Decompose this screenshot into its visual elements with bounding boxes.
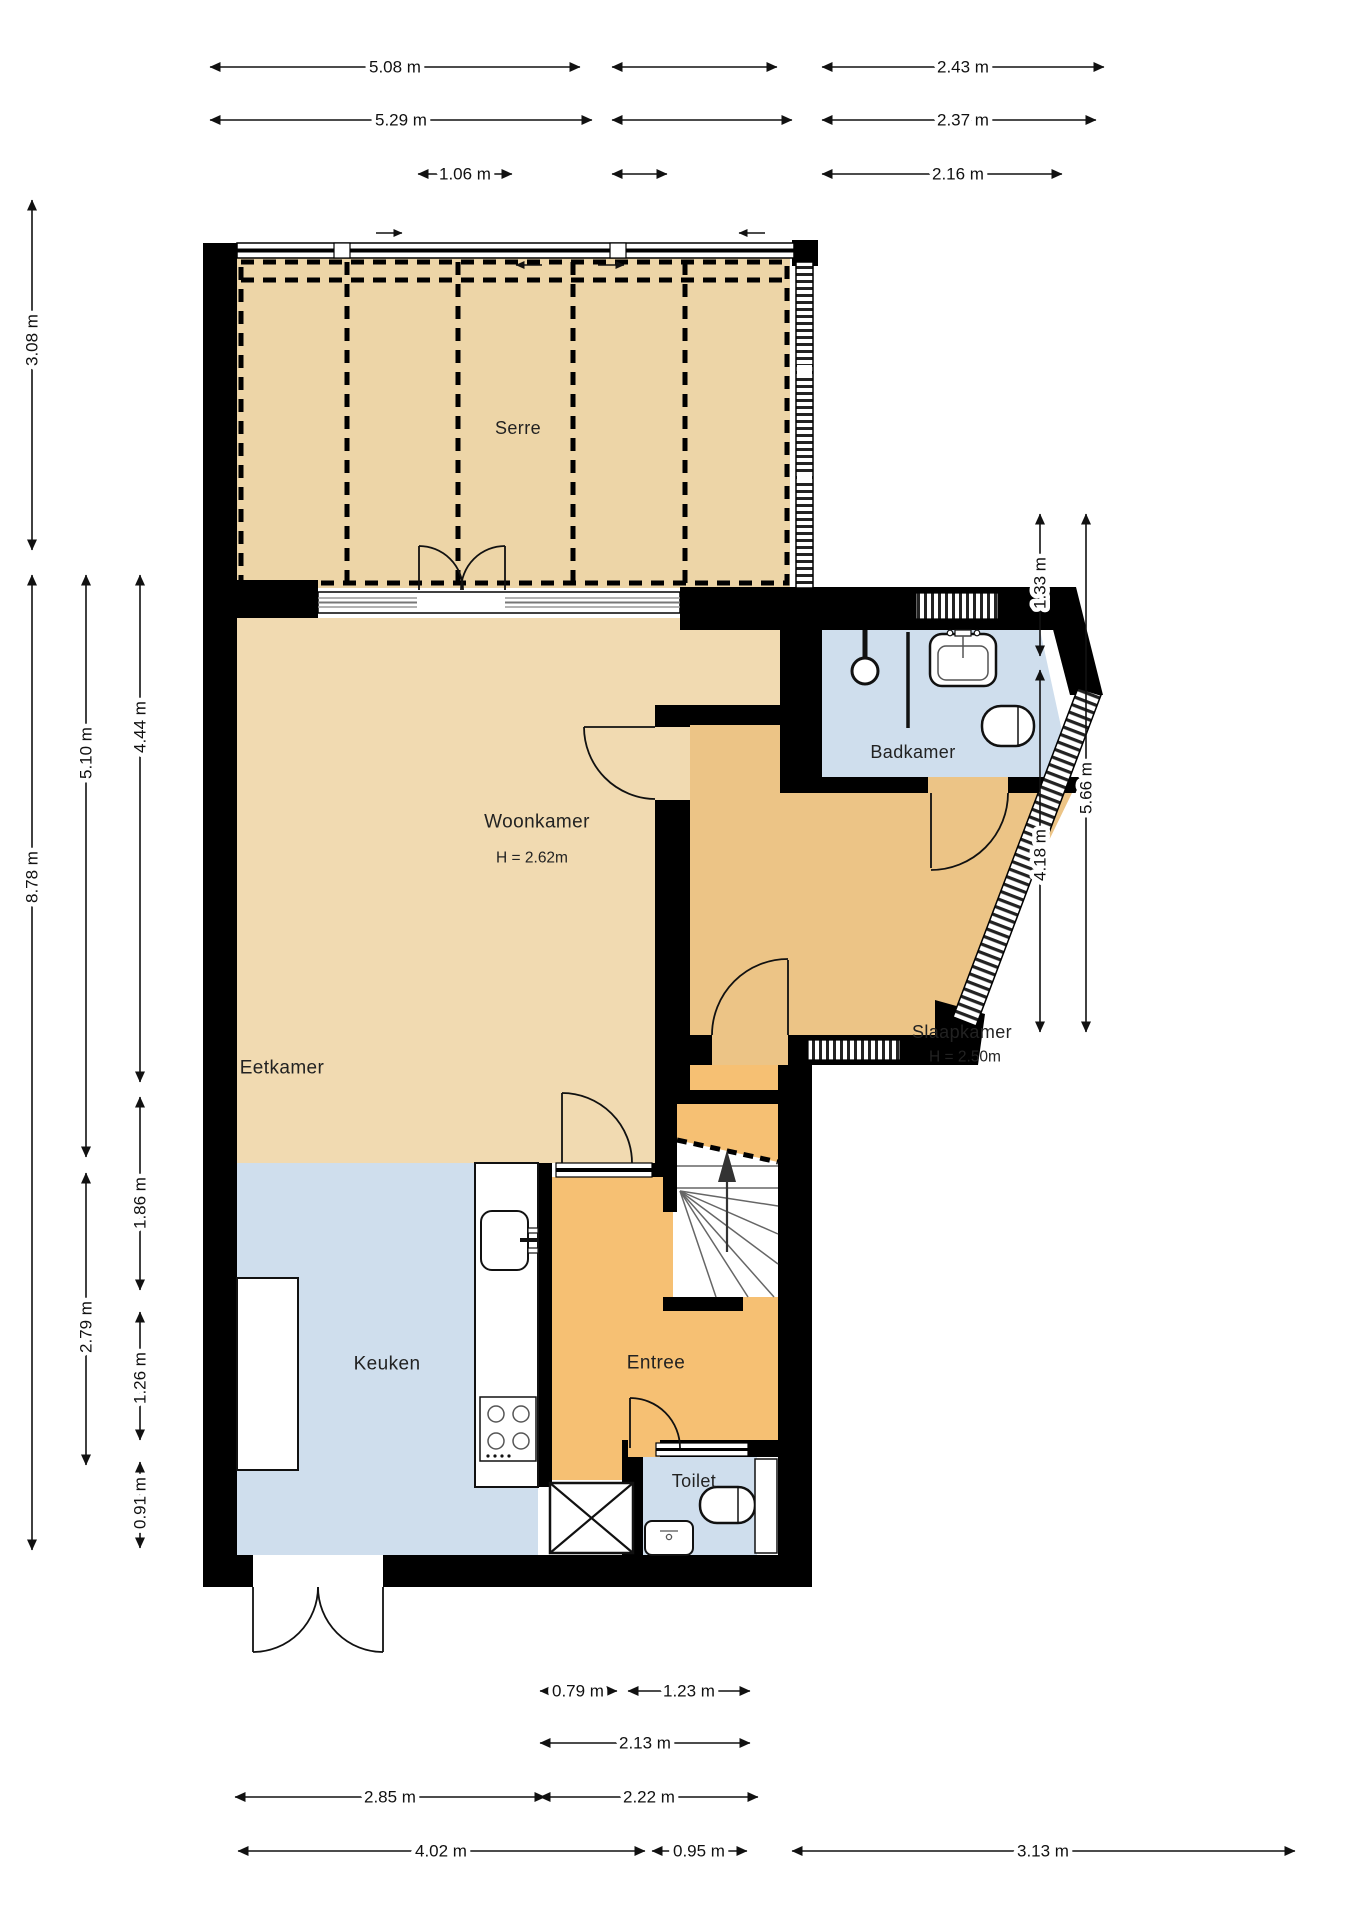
- slaapkamer-window: [808, 1040, 900, 1060]
- entree-window: [556, 1163, 652, 1177]
- staircase: [677, 1104, 778, 1297]
- understairs-floor: [673, 1311, 778, 1440]
- room-label-eetkamer: Eetkamer: [240, 1058, 325, 1079]
- dim-label: 0.95 m: [673, 1842, 725, 1861]
- dim-label: 5.08 m: [369, 58, 421, 77]
- room-label-entree: Entree: [627, 1353, 685, 1374]
- dim-bottom-5: 2.22 m: [540, 1788, 758, 1807]
- floorplan-canvas: 5.08 m 2.43 m 5.29 m 2.37 m 1.06 m 2.16 …: [0, 0, 1358, 1920]
- dim-left-6: 1.86 m: [131, 1097, 150, 1290]
- dim-bottom-2: 1.23 m: [628, 1682, 750, 1701]
- dim-left-2: 8.78 m: [23, 575, 42, 1550]
- dim-label: 5.10 m: [77, 727, 96, 779]
- dim-label: 1.33 m: [1031, 557, 1050, 609]
- stove: [480, 1397, 536, 1461]
- dim-top-2: 2.43 m: [612, 58, 1104, 77]
- dim-left-8: 0.91 m: [131, 1462, 150, 1548]
- room-label-slaapkamer: Slaapkamer: [912, 1022, 1012, 1042]
- dim-top-1: 5.08 m: [210, 58, 580, 77]
- corridor-floor: [690, 1065, 778, 1090]
- dim-top-3: 5.29 m: [210, 111, 592, 130]
- woonkamer-floor-ext: [655, 618, 780, 705]
- room-label-toilet: Toilet: [672, 1471, 716, 1491]
- dim-label: 1.23 m: [663, 1682, 715, 1701]
- dim-label: 4.18 m: [1031, 829, 1050, 881]
- room-label-badkamer: Badkamer: [870, 742, 955, 762]
- wc-sink: [645, 1521, 693, 1555]
- serre-woonkamer-window: [318, 592, 680, 613]
- room-height-slaapkamer: H = 2.50m: [929, 1049, 1001, 1066]
- dim-left-7: 1.26 m: [131, 1312, 150, 1440]
- floorplan-drawing: 5.08 m 2.43 m 5.29 m 2.37 m 1.06 m 2.16 …: [0, 0, 1358, 1920]
- dim-bottom-3: 2.13 m: [540, 1734, 750, 1753]
- toilet-window: [656, 1443, 748, 1456]
- dim-right-3: 5.66 m: [1077, 514, 1096, 1032]
- dim-left-3: 5.10 m: [77, 575, 96, 1157]
- dim-label: 2.13 m: [619, 1734, 671, 1753]
- dim-label: 2.85 m: [364, 1788, 416, 1807]
- bathroom-sink: [930, 630, 996, 686]
- dim-label: 5.66 m: [1077, 762, 1096, 814]
- dim-bottom-7: 0.95 m: [652, 1842, 747, 1861]
- keuken-exterior-double-door: [253, 1587, 383, 1652]
- dim-top-4: 2.37 m: [612, 111, 1096, 130]
- dim-bottom-1: 0.79 m: [540, 1682, 617, 1701]
- dim-label: 3.08 m: [23, 314, 42, 366]
- dim-label: 0.91 m: [131, 1477, 150, 1529]
- dim-top-5: 1.06 m: [418, 165, 512, 184]
- woonkamer-floor: [237, 618, 655, 1163]
- bathroom-toilet: [982, 706, 1034, 746]
- badkamer-window: [916, 593, 998, 619]
- wc-toilet: [700, 1487, 755, 1523]
- dim-label: 0.79 m: [552, 1682, 604, 1701]
- dim-label: 2.22 m: [623, 1788, 675, 1807]
- entree-floor: [552, 1177, 673, 1480]
- dim-bottom-6: 4.02 m: [238, 1842, 645, 1861]
- dim-label: 1.26 m: [131, 1352, 150, 1404]
- dim-bottom-8: 3.13 m: [792, 1842, 1295, 1861]
- wc-niche: [755, 1459, 777, 1553]
- dim-left-1: 3.08 m: [23, 200, 42, 550]
- serre-right-window: [796, 262, 813, 588]
- room-height-woonkamer: H = 2.62m: [496, 850, 568, 867]
- stair-exit-floor: [743, 1297, 778, 1311]
- dim-left-4: 2.79 m: [77, 1173, 96, 1465]
- dim-label: 2.37 m: [937, 111, 989, 130]
- dim-bottom-4: 2.85 m: [235, 1788, 545, 1807]
- dim-label: 2.79 m: [77, 1301, 96, 1353]
- kitchen-counter-left: [237, 1278, 298, 1470]
- storage-closet: [550, 1483, 633, 1553]
- dim-label: 4.44 m: [131, 701, 150, 753]
- dim-label: 3.13 m: [1017, 1842, 1069, 1861]
- dim-label: 4.02 m: [415, 1842, 467, 1861]
- dim-label: 5.29 m: [375, 111, 427, 130]
- room-label-woonkamer: Woonkamer: [484, 812, 590, 833]
- dim-label: 2.16 m: [932, 165, 984, 184]
- room-label-keuken: Keuken: [354, 1354, 421, 1375]
- dim-label: 2.43 m: [937, 58, 989, 77]
- dim-label: 1.86 m: [131, 1177, 150, 1229]
- dim-label: 1.06 m: [439, 165, 491, 184]
- room-label-serre: Serre: [495, 418, 541, 438]
- dim-top-6: 2.16 m: [612, 165, 1062, 184]
- dim-label: 8.78 m: [23, 851, 42, 903]
- dim-left-5: 4.44 m: [131, 575, 150, 1082]
